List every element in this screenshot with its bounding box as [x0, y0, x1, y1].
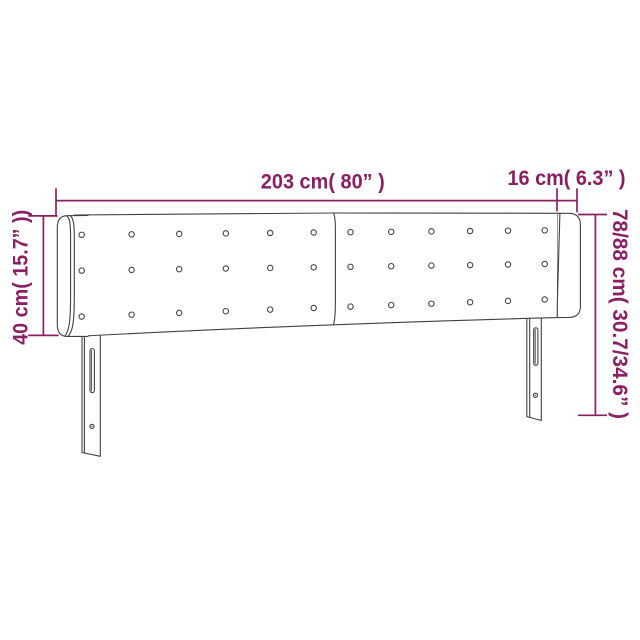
svg-text:78/88 cm( 30.7/34.6” ): 78/88 cm( 30.7/34.6” ) [608, 209, 633, 419]
svg-text:16 cm( 6.3” ): 16 cm( 6.3” ) [508, 165, 626, 190]
svg-text:203 cm( 80” ): 203 cm( 80” ) [261, 168, 385, 193]
svg-text:40 cm( 15.7” )): 40 cm( 15.7” )) [8, 210, 33, 345]
